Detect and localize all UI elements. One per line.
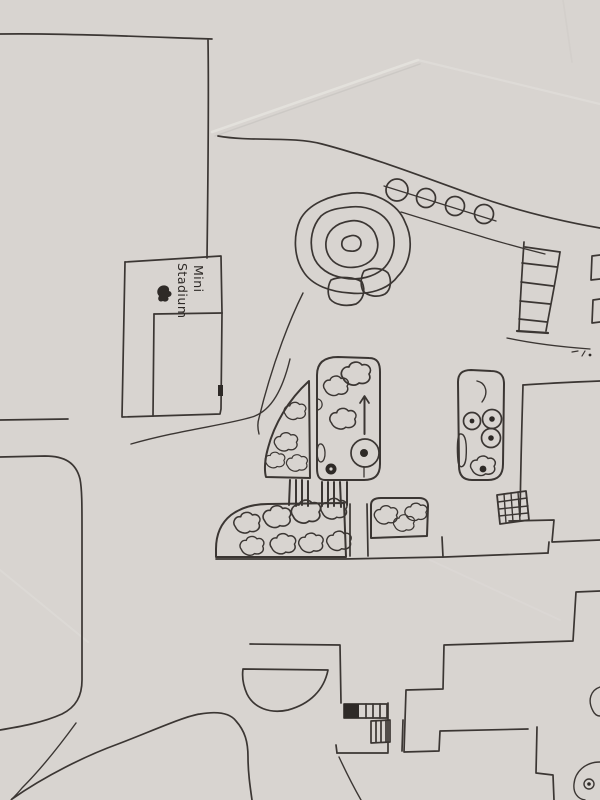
label-line-2: Stadium: [175, 263, 190, 319]
tree-dot: [480, 466, 487, 473]
sketch-canvas: Mini Stadium: [0, 0, 600, 800]
paper-background: [0, 0, 600, 800]
photographed-sketch-map: Mini Stadium: [0, 0, 600, 800]
tree-dot: [360, 449, 368, 457]
ink-speck: [589, 354, 592, 357]
tree-dot: [489, 416, 495, 422]
tree-dot: [488, 435, 494, 441]
tree-dot: [470, 419, 475, 424]
label-line-1: Mini: [191, 265, 206, 293]
building-door-mark: [218, 385, 223, 396]
dark-ring-hole: [329, 467, 332, 470]
steps-dark-cell: [344, 704, 359, 718]
tree-dot: [587, 782, 591, 786]
